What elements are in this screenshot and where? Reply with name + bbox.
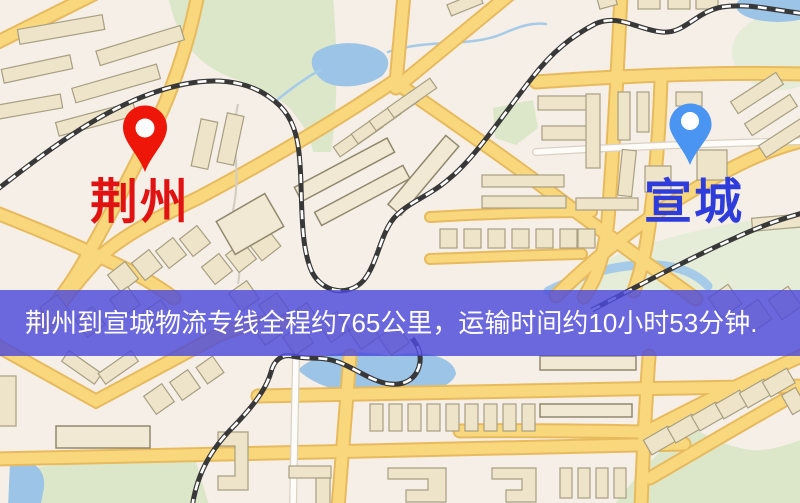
- route-info-banner: 荆州到宣城物流专线全程约765公里，运输时间约10小时53分钟.: [0, 290, 800, 356]
- route-info-text: 荆州到宣城物流专线全程约765公里，运输时间约10小时53分钟.: [25, 310, 757, 336]
- origin-label: 荆州: [90, 179, 190, 227]
- map-canvas: [0, 0, 800, 503]
- origin-pin-hole: [136, 119, 155, 138]
- map-view[interactable]: 荆州 宣城 荆州到宣城物流专线全程约765公里，运输时间约10小时53分钟.: [0, 0, 800, 503]
- destination-pin-hole: [681, 112, 699, 130]
- destination-label: 宣城: [644, 179, 744, 227]
